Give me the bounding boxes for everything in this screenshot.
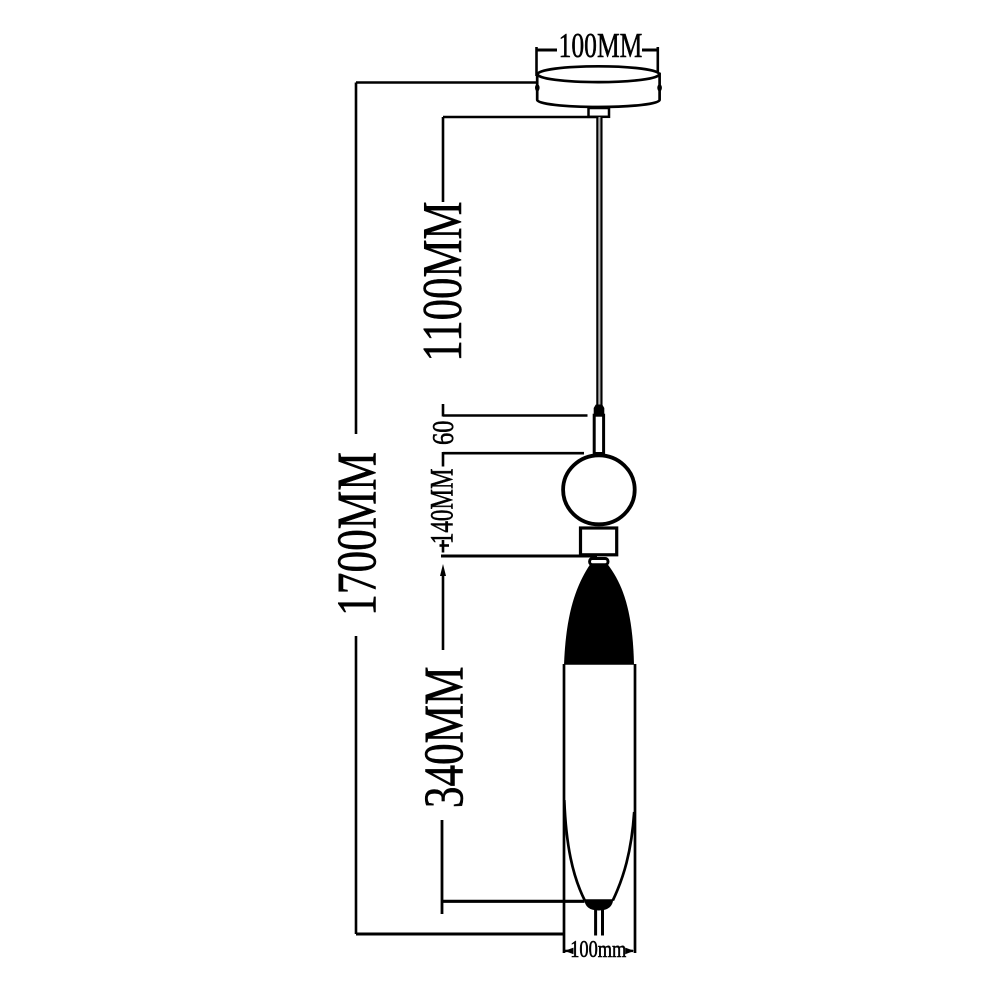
svg-text:60: 60: [427, 421, 461, 445]
svg-text:100MM: 100MM: [559, 26, 643, 65]
svg-text:1100MM: 1100MM: [412, 201, 474, 361]
svg-text:1700MM: 1700MM: [325, 452, 388, 616]
svg-text:340MM: 340MM: [412, 666, 475, 808]
svg-text:140MM: 140MM: [425, 468, 461, 544]
svg-text:100mm: 100mm: [570, 936, 626, 963]
